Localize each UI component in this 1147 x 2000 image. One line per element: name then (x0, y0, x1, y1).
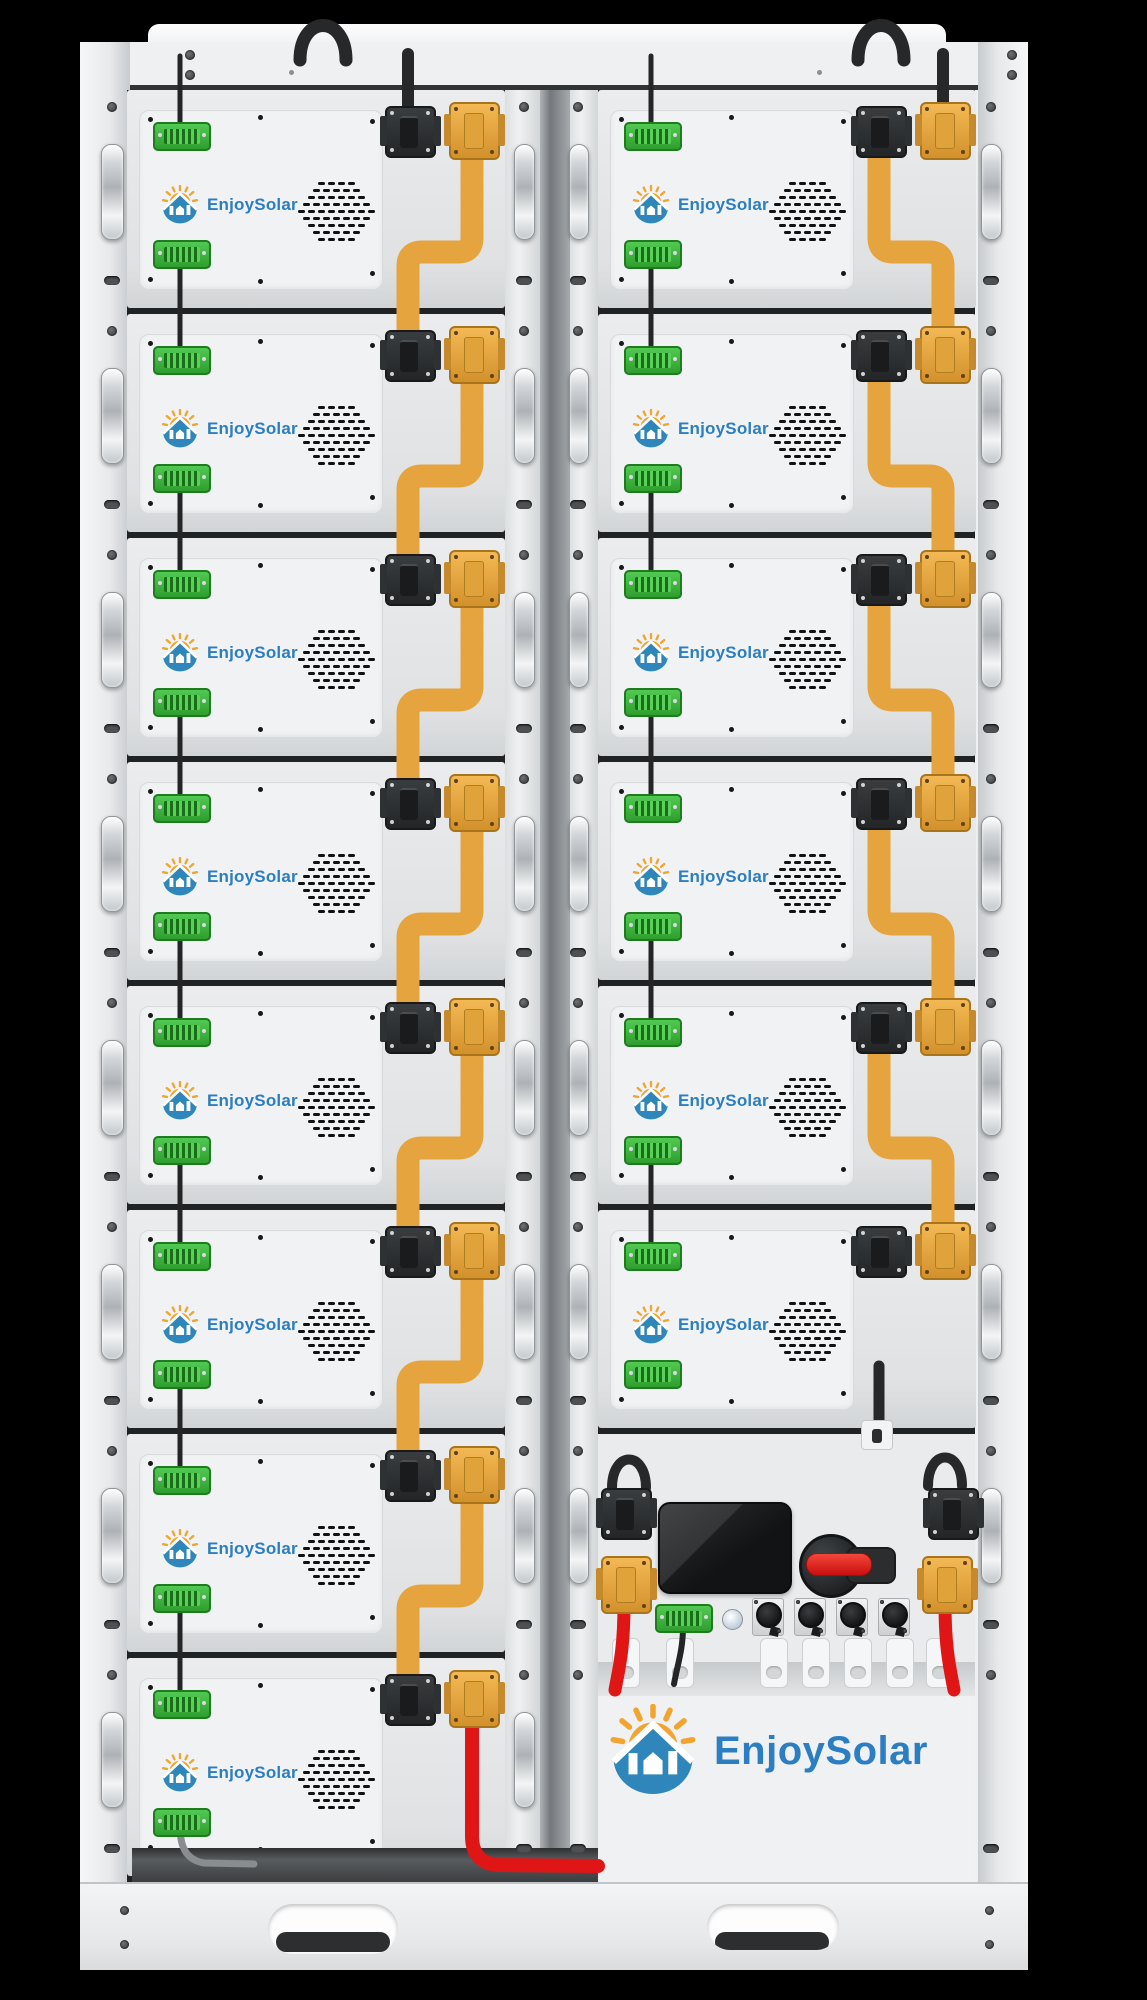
comm-connector-bottom (624, 688, 682, 717)
slot-hole (570, 1396, 586, 1405)
rack-handle (514, 1488, 535, 1584)
screw (986, 550, 996, 560)
dc-breaker-red-handle (806, 1553, 872, 1576)
battery-module: EnjoySolar (598, 986, 976, 1204)
screw (729, 1011, 734, 1016)
screw (148, 277, 153, 282)
comm-connector-top (624, 794, 682, 823)
slot-hole (983, 724, 999, 733)
screw (185, 50, 195, 60)
slot-hole (570, 948, 586, 957)
screw (107, 774, 117, 784)
screw (729, 115, 734, 120)
sun-house-logo-icon (629, 1305, 673, 1345)
comm-connector-bottom (624, 1136, 682, 1165)
rack-handle (981, 144, 1002, 240)
sun-house-logo-icon (629, 633, 673, 673)
screw (148, 1685, 153, 1690)
dc-connector-black (385, 106, 436, 158)
screw (148, 1621, 153, 1626)
dc-connector-orange (449, 1222, 500, 1280)
screw (148, 949, 153, 954)
brand-logo-text: EnjoySolar (678, 195, 769, 215)
screw (258, 503, 263, 508)
rack-handle (569, 1264, 589, 1360)
comm-connector-top (153, 122, 211, 151)
screw (986, 998, 996, 1008)
rack-handle (101, 1488, 124, 1584)
screw (519, 1446, 529, 1456)
dc-connector-orange (920, 326, 971, 384)
comm-connector-top (153, 1242, 211, 1271)
rack-handle (514, 592, 535, 688)
slot-hole (570, 276, 586, 285)
screw (573, 102, 583, 112)
dc-connector-orange (920, 102, 971, 160)
screw (841, 1015, 846, 1020)
screw (619, 725, 624, 730)
slot-hole (104, 1844, 120, 1853)
rack-handle (101, 368, 124, 464)
slot-hole (104, 1620, 120, 1629)
slot-hole (570, 1620, 586, 1629)
screw (619, 1173, 624, 1178)
sun-house-logo-icon (629, 409, 673, 449)
screw (573, 1222, 583, 1232)
screw (573, 998, 583, 1008)
screw (841, 1239, 846, 1244)
brand-logo: EnjoySolar (629, 401, 769, 457)
comm-connector-top (624, 570, 682, 599)
control-dc-connector-black-right (928, 1488, 979, 1540)
comm-connector-top (624, 346, 682, 375)
dc-connector-black (385, 1674, 436, 1726)
brand-logo-text: EnjoySolar (207, 643, 298, 663)
screw (841, 1167, 846, 1172)
slot-hole (570, 1172, 586, 1181)
screw (729, 1235, 734, 1240)
vent-grille (296, 621, 376, 697)
screw (107, 550, 117, 560)
brand-logo: EnjoySolar (158, 1521, 298, 1577)
screw (258, 115, 263, 120)
slot-hole (570, 1844, 586, 1853)
dc-connector-black (385, 778, 436, 830)
vent-grille (296, 1517, 376, 1593)
screw (370, 943, 375, 948)
dc-connector-orange (449, 550, 500, 608)
screw (519, 1222, 529, 1232)
sun-house-logo-icon (158, 857, 202, 897)
vent-grille (767, 621, 847, 697)
slot-hole (516, 276, 532, 285)
brand-logo: EnjoySolar (158, 1745, 298, 1801)
slot-hole (570, 500, 586, 509)
rack-handle (981, 592, 1002, 688)
screw (258, 1623, 263, 1628)
slot-hole (516, 948, 532, 957)
brand-logo-text: EnjoySolar (207, 1539, 298, 1559)
battery-module: EnjoySolar (127, 1658, 505, 1876)
rack-handle (101, 144, 124, 240)
screw (841, 943, 846, 948)
screw (148, 117, 153, 122)
round-socket (878, 1598, 910, 1636)
slot-hole (104, 1172, 120, 1181)
screw (619, 1237, 624, 1242)
screw (841, 271, 846, 276)
dc-connector-orange (449, 998, 500, 1056)
screw (841, 119, 846, 124)
comm-connector-top (153, 1018, 211, 1047)
screw (841, 1391, 846, 1396)
screw (519, 326, 529, 336)
sun-house-logo-icon (629, 1081, 673, 1121)
rack-handle (569, 144, 589, 240)
screw (841, 791, 846, 796)
sun-house-logo-icon (158, 1753, 202, 1793)
screw (619, 277, 624, 282)
comm-connector-bottom (153, 240, 211, 269)
screw (120, 1906, 129, 1915)
brand-logo-text: EnjoySolar (207, 867, 298, 887)
cable-clip (802, 1638, 830, 1688)
screw (258, 563, 263, 568)
screw (985, 1940, 994, 1949)
base-slot (707, 1904, 839, 1950)
screw (619, 565, 624, 570)
brand-logo-text: EnjoySolar (207, 1091, 298, 1111)
battery-module: EnjoySolar (127, 1434, 505, 1652)
rack-base (80, 1882, 1028, 1970)
brand-logo: EnjoySolar (158, 1073, 298, 1129)
brand-logo-text: EnjoySolar (678, 1315, 769, 1335)
brand-logo: EnjoySolar (158, 849, 298, 905)
screw (148, 725, 153, 730)
round-socket (836, 1598, 868, 1636)
cable-clip (844, 1638, 872, 1688)
vent-grille (296, 1069, 376, 1145)
screw (619, 1013, 624, 1018)
screw (370, 1167, 375, 1172)
vent-grille (296, 845, 376, 921)
screw (148, 1013, 153, 1018)
comm-connector-top (153, 570, 211, 599)
screw (370, 271, 375, 276)
screw (370, 1615, 375, 1620)
dc-connector-orange (920, 550, 971, 608)
battery-module: EnjoySolar (598, 90, 976, 308)
dc-connector-black (385, 554, 436, 606)
slot-hole (983, 1620, 999, 1629)
screw (148, 1461, 153, 1466)
screw (370, 719, 375, 724)
screw (148, 565, 153, 570)
screw (619, 789, 624, 794)
mounting-rail (570, 90, 598, 1882)
slot-hole (570, 724, 586, 733)
comm-connector-bottom (153, 1808, 211, 1837)
brand-logo: EnjoySolar (629, 1297, 769, 1353)
screw (148, 341, 153, 346)
rack-handle (981, 816, 1002, 912)
screw (841, 495, 846, 500)
display-screen (658, 1502, 792, 1594)
cable-clip (612, 1638, 640, 1688)
dc-connector-orange (449, 102, 500, 160)
screw (986, 326, 996, 336)
screw (370, 1391, 375, 1396)
screw (370, 1463, 375, 1468)
screw (519, 998, 529, 1008)
screw (729, 339, 734, 344)
screw (107, 1670, 117, 1680)
screw (1007, 50, 1017, 60)
rack-handle (981, 1264, 1002, 1360)
screw (519, 550, 529, 560)
screw (370, 1687, 375, 1692)
screw (619, 1397, 624, 1402)
vent-grille (767, 845, 847, 921)
brand-panel: EnjoySolar (598, 1696, 975, 1882)
brand-logo: EnjoySolar (158, 625, 298, 681)
screw (107, 326, 117, 336)
screw (258, 1235, 263, 1240)
screw (986, 1446, 996, 1456)
screw (258, 1459, 263, 1464)
rack-handle (981, 1040, 1002, 1136)
mounting-rail (505, 90, 540, 1882)
cable-clip (886, 1638, 914, 1688)
battery-module: EnjoySolar (598, 762, 976, 980)
slot-hole (516, 500, 532, 509)
battery-module: EnjoySolar (127, 762, 505, 980)
battery-cabinet-photo: EnjoySolar EnjoySolar (0, 0, 1147, 2000)
battery-module: EnjoySolar (598, 314, 976, 532)
rack-handle (514, 144, 535, 240)
vent-grille (767, 173, 847, 249)
dc-connector-black (385, 1226, 436, 1278)
screw (258, 787, 263, 792)
control-comm-terminal (655, 1604, 713, 1633)
vent-grille (767, 1293, 847, 1369)
comm-connector-top (153, 1690, 211, 1719)
brand-logo-text: EnjoySolar (207, 1763, 298, 1783)
screw (258, 1683, 263, 1688)
brand-logo-text: EnjoySolar (678, 419, 769, 439)
screw (258, 1399, 263, 1404)
rack-handle (101, 1712, 124, 1808)
dc-connector-black (856, 778, 907, 830)
dc-connector-black (856, 1002, 907, 1054)
brand-logo: EnjoySolar (158, 401, 298, 457)
screw (573, 1446, 583, 1456)
screw (258, 951, 263, 956)
screw (619, 949, 624, 954)
rack-handle (514, 816, 535, 912)
screw (370, 1015, 375, 1020)
screw (370, 791, 375, 796)
screw (370, 1239, 375, 1244)
brand-logo: EnjoySolar (158, 177, 298, 233)
rack-handle (101, 816, 124, 912)
vent-grille (296, 1741, 376, 1817)
screw (258, 339, 263, 344)
screw (370, 119, 375, 124)
screw (370, 343, 375, 348)
screw (619, 341, 624, 346)
slot-hole (983, 1396, 999, 1405)
round-socket (752, 1598, 784, 1636)
screw (986, 1222, 996, 1232)
sun-house-logo-icon (158, 409, 202, 449)
screw (258, 1175, 263, 1180)
rack-handle (569, 592, 589, 688)
base-slot (268, 1904, 398, 1954)
slot-hole (983, 500, 999, 509)
screw (729, 1175, 734, 1180)
dc-connector-black (385, 1002, 436, 1054)
vent-grille (767, 1069, 847, 1145)
control-dc-connector-black-left (601, 1488, 652, 1540)
screw (986, 774, 996, 784)
vent-grille (767, 397, 847, 473)
screw (370, 495, 375, 500)
indicator-button (722, 1609, 743, 1630)
slot-hole (104, 948, 120, 957)
comm-connector-bottom (153, 1584, 211, 1613)
battery-module: EnjoySolar (127, 1210, 505, 1428)
screw (573, 326, 583, 336)
screw (1007, 70, 1017, 80)
sun-house-logo-icon (158, 1081, 202, 1121)
comm-connector-bottom (624, 1360, 682, 1389)
screw (841, 567, 846, 572)
slot-hole (516, 1844, 532, 1853)
slot-hole (104, 724, 120, 733)
slot-hole (516, 1172, 532, 1181)
slot-hole (104, 1396, 120, 1405)
dc-connector-black (385, 1450, 436, 1502)
comm-connector-top (624, 122, 682, 151)
screw (729, 951, 734, 956)
dc-connector-orange (920, 774, 971, 832)
slot-hole (104, 276, 120, 285)
battery-module: EnjoySolar (127, 314, 505, 532)
sun-house-logo-icon (158, 1305, 202, 1345)
vent-grille (296, 397, 376, 473)
screw (148, 1397, 153, 1402)
comm-connector-bottom (153, 1360, 211, 1389)
dc-connector-black (856, 554, 907, 606)
screw (107, 1222, 117, 1232)
screw (729, 787, 734, 792)
slot-hole (104, 500, 120, 509)
screw (985, 1906, 994, 1915)
brand-logo-text: EnjoySolar (207, 195, 298, 215)
comm-connector-top (153, 1466, 211, 1495)
brand-logo-text: EnjoySolar (678, 643, 769, 663)
brand-logo-text: EnjoySolar (207, 1315, 298, 1335)
cable-clip (760, 1638, 788, 1688)
screw (185, 70, 195, 80)
control-dc-connector-orange-left (601, 1556, 652, 1614)
rack-handle (981, 368, 1002, 464)
screw (120, 1940, 129, 1949)
rack-handle (514, 368, 535, 464)
screw (519, 1670, 529, 1680)
mounting-hole (289, 70, 294, 75)
screw (573, 1670, 583, 1680)
mounting-hole (817, 70, 822, 75)
screw (841, 343, 846, 348)
dc-connector-orange (920, 1222, 971, 1280)
rack-handle (981, 1488, 1002, 1584)
sun-house-logo-icon (158, 1529, 202, 1569)
screw (148, 501, 153, 506)
rack-handle (514, 1264, 535, 1360)
comm-connector-top (624, 1018, 682, 1047)
brand-logo: EnjoySolar (629, 177, 769, 233)
brand-logo: EnjoySolar (629, 625, 769, 681)
screw (519, 774, 529, 784)
screw (519, 102, 529, 112)
comm-connector-top (624, 1242, 682, 1271)
slot-hole (516, 1620, 532, 1629)
screw (986, 1670, 996, 1680)
screw (107, 998, 117, 1008)
brand-logo: EnjoySolar (629, 1073, 769, 1129)
control-dc-connector-orange-right (922, 1556, 973, 1614)
rack-frame-left (80, 42, 130, 1882)
rack-handle (514, 1040, 535, 1136)
slot-hole (983, 1172, 999, 1181)
brand-logo-text: EnjoySolar (678, 1091, 769, 1111)
screw (107, 102, 117, 112)
battery-module: EnjoySolar (598, 1210, 976, 1428)
screw (258, 1011, 263, 1016)
screw (573, 774, 583, 784)
rack-frame-right (978, 42, 1028, 1882)
comm-connector-bottom (624, 912, 682, 941)
screw (370, 1839, 375, 1844)
rack-handle (101, 1264, 124, 1360)
slot-hole (516, 724, 532, 733)
dc-connector-orange (449, 1670, 500, 1728)
comm-connector-bottom (153, 1136, 211, 1165)
dc-connector-black (385, 330, 436, 382)
brand-logo-text: EnjoySolar (714, 1729, 928, 1774)
battery-module: EnjoySolar (127, 538, 505, 756)
dc-connector-black (856, 330, 907, 382)
comm-connector-bottom (624, 464, 682, 493)
rack-handle (101, 1040, 124, 1136)
dc-connector-orange (449, 774, 500, 832)
screw (370, 567, 375, 572)
screw (148, 1173, 153, 1178)
battery-module: EnjoySolar (127, 986, 505, 1204)
cable-clip (926, 1638, 954, 1688)
cable-clamp (861, 1420, 893, 1450)
brand-logo: EnjoySolar (629, 849, 769, 905)
vent-grille (296, 173, 376, 249)
screw (148, 1237, 153, 1242)
comm-connector-top (153, 346, 211, 375)
screw (619, 117, 624, 122)
brand-logo-text: EnjoySolar (207, 419, 298, 439)
rack-handle (569, 368, 589, 464)
screw (148, 789, 153, 794)
